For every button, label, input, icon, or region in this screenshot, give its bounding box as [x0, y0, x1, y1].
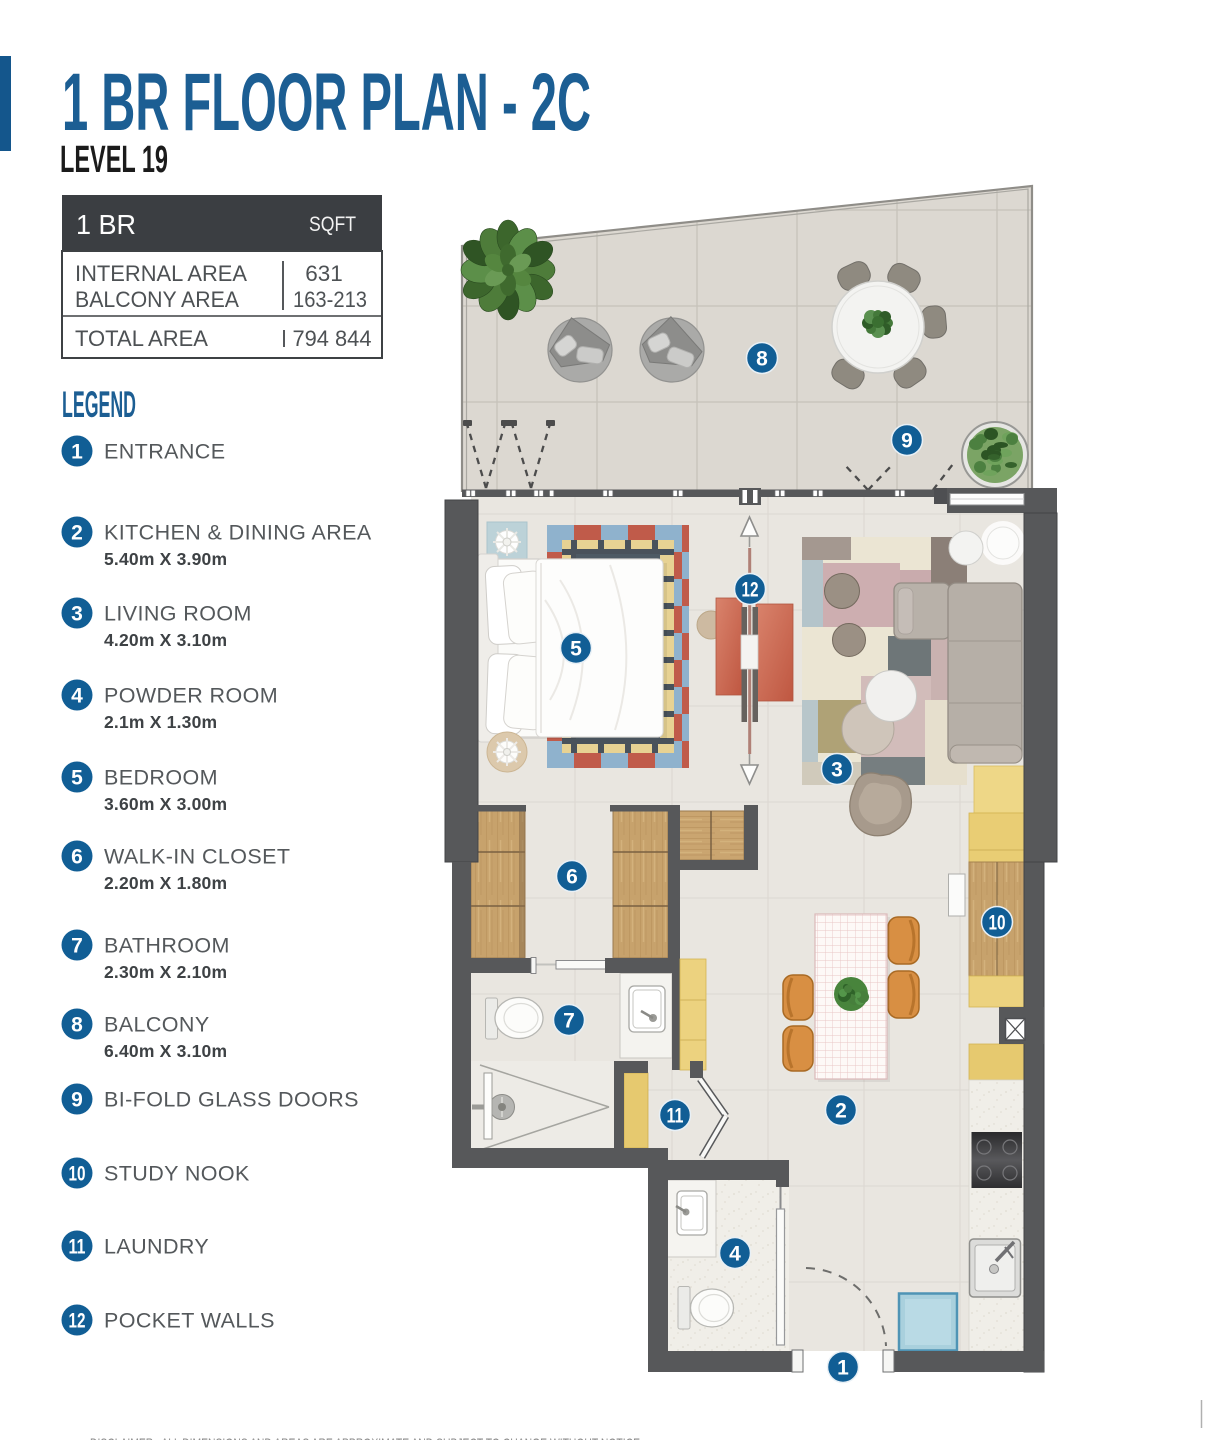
- svg-text:BI-FOLD GLASS DOORS: BI-FOLD GLASS DOORS: [104, 1088, 359, 1112]
- svg-text:12: 12: [742, 579, 759, 602]
- svg-text:11: 11: [69, 1236, 86, 1259]
- svg-text:5.40m X 3.90m: 5.40m X 3.90m: [104, 549, 227, 569]
- svg-text:5: 5: [71, 767, 83, 790]
- svg-text:631: 631: [305, 261, 343, 286]
- svg-text:KITCHEN & DINING AREA: KITCHEN & DINING AREA: [104, 521, 372, 545]
- svg-text:6.40m X 3.10m: 6.40m X 3.10m: [104, 1041, 227, 1061]
- svg-text:3: 3: [831, 759, 843, 782]
- svg-text:DISCLAIMER : ALL DIMENSIONS AN: DISCLAIMER : ALL DIMENSIONS AND AREAS AR…: [90, 1435, 640, 1440]
- svg-text:3: 3: [71, 603, 83, 626]
- svg-text:6: 6: [566, 866, 578, 889]
- svg-text:8: 8: [756, 348, 768, 371]
- svg-text:2: 2: [835, 1100, 847, 1123]
- svg-text:LEVEL 19: LEVEL 19: [60, 139, 168, 181]
- svg-text:6: 6: [71, 846, 83, 869]
- svg-text:11: 11: [667, 1105, 684, 1128]
- svg-text:1 BR: 1 BR: [76, 209, 136, 240]
- svg-text:LAUNDRY: LAUNDRY: [104, 1235, 209, 1259]
- svg-text:TOTAL AREA: TOTAL AREA: [75, 326, 208, 351]
- svg-text:2.1m X 1.30m: 2.1m X 1.30m: [104, 712, 217, 732]
- svg-text:8: 8: [71, 1014, 83, 1037]
- svg-text:7: 7: [563, 1010, 575, 1033]
- svg-text:3.60m X 3.00m: 3.60m X 3.00m: [104, 794, 227, 814]
- svg-text:2.30m X 2.10m: 2.30m X 2.10m: [104, 962, 227, 982]
- svg-text:2.20m X 1.80m: 2.20m X 1.80m: [104, 873, 227, 893]
- svg-text:10: 10: [69, 1163, 86, 1186]
- svg-text:SQFT: SQFT: [309, 213, 356, 236]
- svg-text:4: 4: [71, 685, 83, 708]
- svg-text:12: 12: [69, 1310, 86, 1333]
- svg-text:BALCONY: BALCONY: [104, 1013, 210, 1037]
- svg-text:LEGEND: LEGEND: [62, 384, 136, 425]
- svg-text:9: 9: [901, 430, 913, 453]
- svg-text:LIVING ROOM: LIVING ROOM: [104, 602, 252, 626]
- svg-text:POWDER ROOM: POWDER ROOM: [104, 684, 278, 708]
- svg-text:7: 7: [71, 935, 83, 958]
- svg-text:10: 10: [989, 912, 1006, 935]
- svg-text:5: 5: [570, 638, 582, 661]
- svg-text:163-213: 163-213: [293, 287, 367, 312]
- svg-text:1: 1: [837, 1357, 849, 1380]
- svg-text:1: 1: [71, 441, 83, 464]
- svg-text:INTERNAL AREA: INTERNAL AREA: [75, 261, 247, 286]
- svg-text:POCKET WALLS: POCKET WALLS: [104, 1309, 275, 1333]
- svg-text:WALK-IN CLOSET: WALK-IN CLOSET: [104, 845, 290, 869]
- svg-text:STUDY NOOK: STUDY NOOK: [104, 1162, 250, 1186]
- svg-text:BEDROOM: BEDROOM: [104, 766, 218, 790]
- svg-text:9: 9: [71, 1089, 83, 1112]
- svg-text:BATHROOM: BATHROOM: [104, 934, 230, 958]
- svg-text:794 844: 794 844: [293, 326, 372, 351]
- svg-text:2: 2: [71, 522, 83, 545]
- svg-text:BALCONY AREA: BALCONY AREA: [75, 287, 239, 312]
- svg-text:4: 4: [729, 1243, 741, 1266]
- svg-text:4.20m X 3.10m: 4.20m X 3.10m: [104, 630, 227, 650]
- svg-text:1 BR FLOOR PLAN - 2C: 1 BR FLOOR PLAN - 2C: [62, 57, 591, 148]
- svg-text:ENTRANCE: ENTRANCE: [104, 440, 225, 464]
